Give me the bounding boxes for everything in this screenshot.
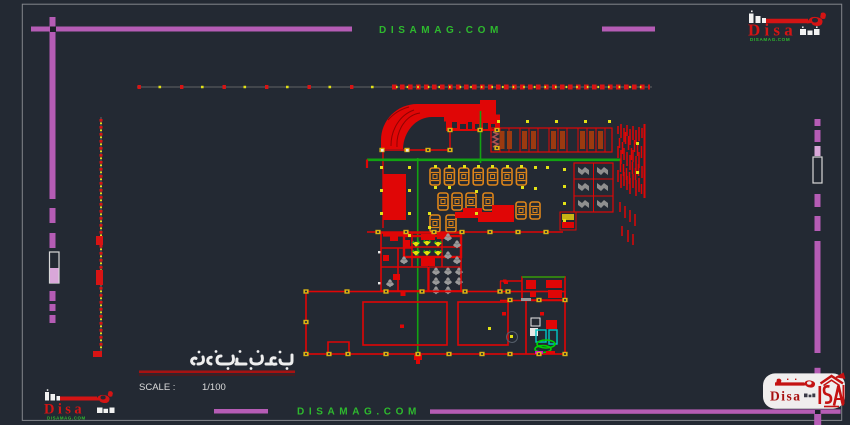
svg-text:DISAMAG.COM: DISAMAG.COM [379, 25, 503, 36]
svg-text:SCALE :: SCALE : [139, 382, 175, 393]
svg-text:DISAMAG.COM: DISAMAG.COM [750, 37, 790, 42]
svg-text:DISAMAG.COM: DISAMAG.COM [47, 416, 86, 421]
svg-text:1/100: 1/100 [202, 382, 226, 393]
svg-text:Disa: Disa [770, 389, 802, 404]
svg-text:DISAMAG.COM: DISAMAG.COM [297, 407, 421, 418]
